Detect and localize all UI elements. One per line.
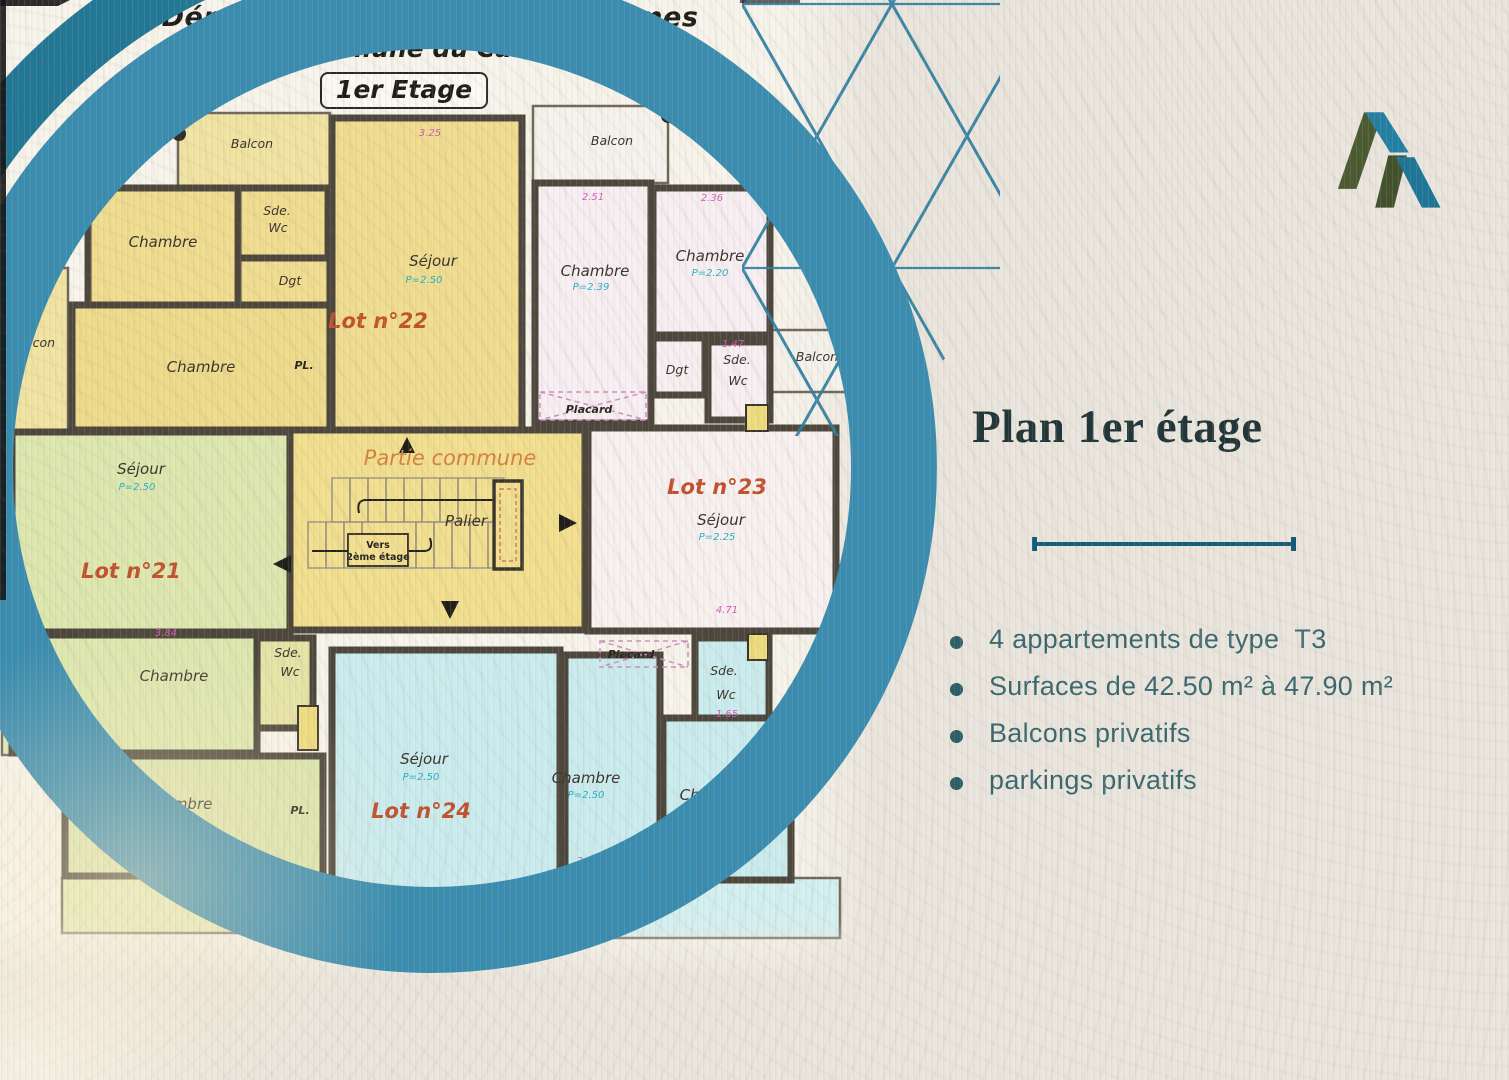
ceiling-height: P=2.50 <box>119 482 156 493</box>
dimension: 3.25 <box>419 128 441 139</box>
room-label-balcon: Balcon <box>13 335 55 350</box>
title-divider <box>1032 536 1296 556</box>
stairs-direction-line1: Vers <box>366 540 390 551</box>
lot-21-label: Lot n°21 <box>81 559 181 583</box>
bullet-icon <box>950 777 963 790</box>
ceiling-height: P=2.25 <box>699 532 736 543</box>
room-label-wc: Wc <box>280 664 299 679</box>
common-area-label: Partie commune <box>364 446 537 470</box>
room-label-wc: Wc <box>716 687 735 702</box>
room-label-sejour: Séjour <box>117 460 166 478</box>
room-label-chambre: Chambre <box>140 667 209 685</box>
room-label-sde: Sde. <box>723 352 751 367</box>
room-label-placard: Placard <box>608 648 655 661</box>
bullet-icon <box>950 683 963 696</box>
page-title: Plan 1er étage <box>972 400 1263 454</box>
room-label-balcon: Balcon <box>217 907 259 922</box>
survey-dot <box>661 109 675 123</box>
dimension: 2.36 <box>701 193 723 204</box>
survey-dot <box>172 127 186 141</box>
room-label-chambre: Chambre <box>167 358 236 376</box>
feature-balconies: Balcons privatifs <box>989 718 1191 749</box>
dimension: 4.71 <box>716 605 738 616</box>
room-label-chambre: Chambre <box>676 247 745 265</box>
bullet-icon <box>950 636 963 649</box>
dimension: 3.84 <box>155 628 177 639</box>
room-label-sde: Sde. <box>263 203 291 218</box>
room-label-placard: Placard <box>566 403 613 416</box>
room-label-chambre: Chambre <box>552 769 621 787</box>
plan-header: Département des Alpes-Maritimes Commune … <box>150 2 710 109</box>
agency-logo <box>1336 96 1448 224</box>
room-label-sde: Sde. <box>710 663 738 678</box>
lot-24-label: Lot n°24 <box>371 799 471 823</box>
room-label-dgt: Dgt <box>666 362 690 377</box>
plan-header-commune: Commune du Cannet <box>150 34 710 63</box>
dimension: 2.50 <box>577 856 599 867</box>
slide: Balcon Chambre Sde. Wc Dgt Chambre Balco… <box>0 0 1509 1080</box>
list-item: Surfaces de 42.50 m² à 47.90 m² <box>950 671 1393 702</box>
feature-surfaces: Surfaces de 42.50 m² à 47.90 m² <box>989 671 1393 702</box>
stairs-direction-line2: 2ème étage <box>346 552 409 563</box>
dimension: 2.51 <box>582 192 604 203</box>
ceiling-height: P=2.20 <box>692 268 729 279</box>
dimension: 1.47 <box>722 339 745 350</box>
dimension: 1.65 <box>716 709 738 720</box>
feature-list: 4 appartements de type T3 Surfaces de 42… <box>950 624 1393 812</box>
room-label-sejour: Séjour <box>400 750 449 768</box>
room-label-wc: Wc <box>728 373 747 388</box>
room-label-balcon: Balcon <box>231 136 273 151</box>
room-label-pl: PL. <box>294 359 313 372</box>
ceiling-height: P=2.39 <box>573 282 610 293</box>
ceiling-height: P=2.50 <box>406 275 443 286</box>
paper-bottom-fade <box>0 920 874 980</box>
plan-header-departement: Département des Alpes-Maritimes <box>150 2 710 33</box>
floor-plan: Balcon Chambre Sde. Wc Dgt Chambre Balco… <box>0 0 880 980</box>
room-label-chambre: Chambre <box>129 233 198 251</box>
room-label-sde: Sde. <box>274 645 302 660</box>
room-label-palier: Palier <box>445 512 488 530</box>
list-item: Balcons privatifs <box>950 718 1393 749</box>
elevator <box>494 481 522 569</box>
bullet-icon <box>950 730 963 743</box>
room-label-chambre: Chambre <box>144 795 213 813</box>
room-label-balcon: Balcon <box>12 693 54 708</box>
room-label-chambre: Chambre <box>680 786 749 804</box>
room-label-wc: Wc <box>268 220 287 235</box>
room-label-sejour: Séjour <box>697 511 746 529</box>
floor-badge: 1er Etage <box>320 72 488 109</box>
room-label-balcon: Balcon <box>796 349 838 364</box>
list-item: 4 appartements de type T3 <box>950 624 1393 655</box>
ceiling-height: P=2.50 <box>568 790 605 801</box>
room-label-balcon: Balcon <box>591 133 633 148</box>
agency-logo-mark <box>1336 96 1448 224</box>
room-label-pl: PL. <box>290 804 309 817</box>
feature-apartments: 4 appartements de type T3 <box>989 624 1327 655</box>
lot-23-label: Lot n°23 <box>667 475 767 499</box>
ceiling-height: P=2.50 <box>403 772 440 783</box>
room-label-chambre: Chambre <box>561 262 630 280</box>
room-label-dgt: Dgt <box>279 273 303 288</box>
feature-parkings: parkings privatifs <box>989 765 1197 796</box>
lot-22-label: Lot n°22 <box>328 309 428 333</box>
room-label-sejour: Séjour <box>409 252 458 270</box>
list-item: parkings privatifs <box>950 765 1393 796</box>
